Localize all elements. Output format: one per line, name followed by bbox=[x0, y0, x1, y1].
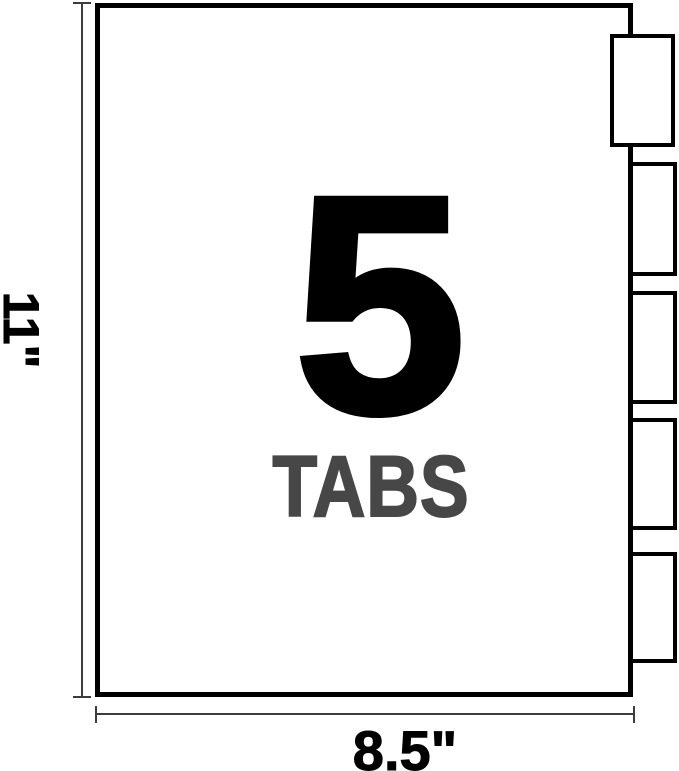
index-tab-5 bbox=[629, 552, 677, 663]
width-dimension-label: 8.5" bbox=[305, 718, 505, 771]
height-dimension-cap-bottom bbox=[73, 696, 91, 698]
width-dimension-line bbox=[95, 713, 635, 715]
tab-count-number: 5 bbox=[180, 150, 580, 460]
tabs-word-label: TABS bbox=[201, 444, 541, 530]
height-dimension-line bbox=[81, 3, 83, 698]
height-dimension-label: 11" bbox=[0, 280, 43, 380]
index-tab-3 bbox=[629, 291, 677, 404]
height-dimension-cap-top bbox=[73, 2, 91, 4]
divider-sheet-dimension-diagram: 11" 5 TABS 8.5" bbox=[0, 0, 679, 771]
index-tab-2 bbox=[629, 162, 677, 276]
index-tab-1 bbox=[610, 34, 675, 147]
width-dimension-tick-left bbox=[95, 706, 97, 723]
width-dimension-tick-right bbox=[633, 706, 635, 723]
index-tab-4 bbox=[629, 418, 677, 530]
